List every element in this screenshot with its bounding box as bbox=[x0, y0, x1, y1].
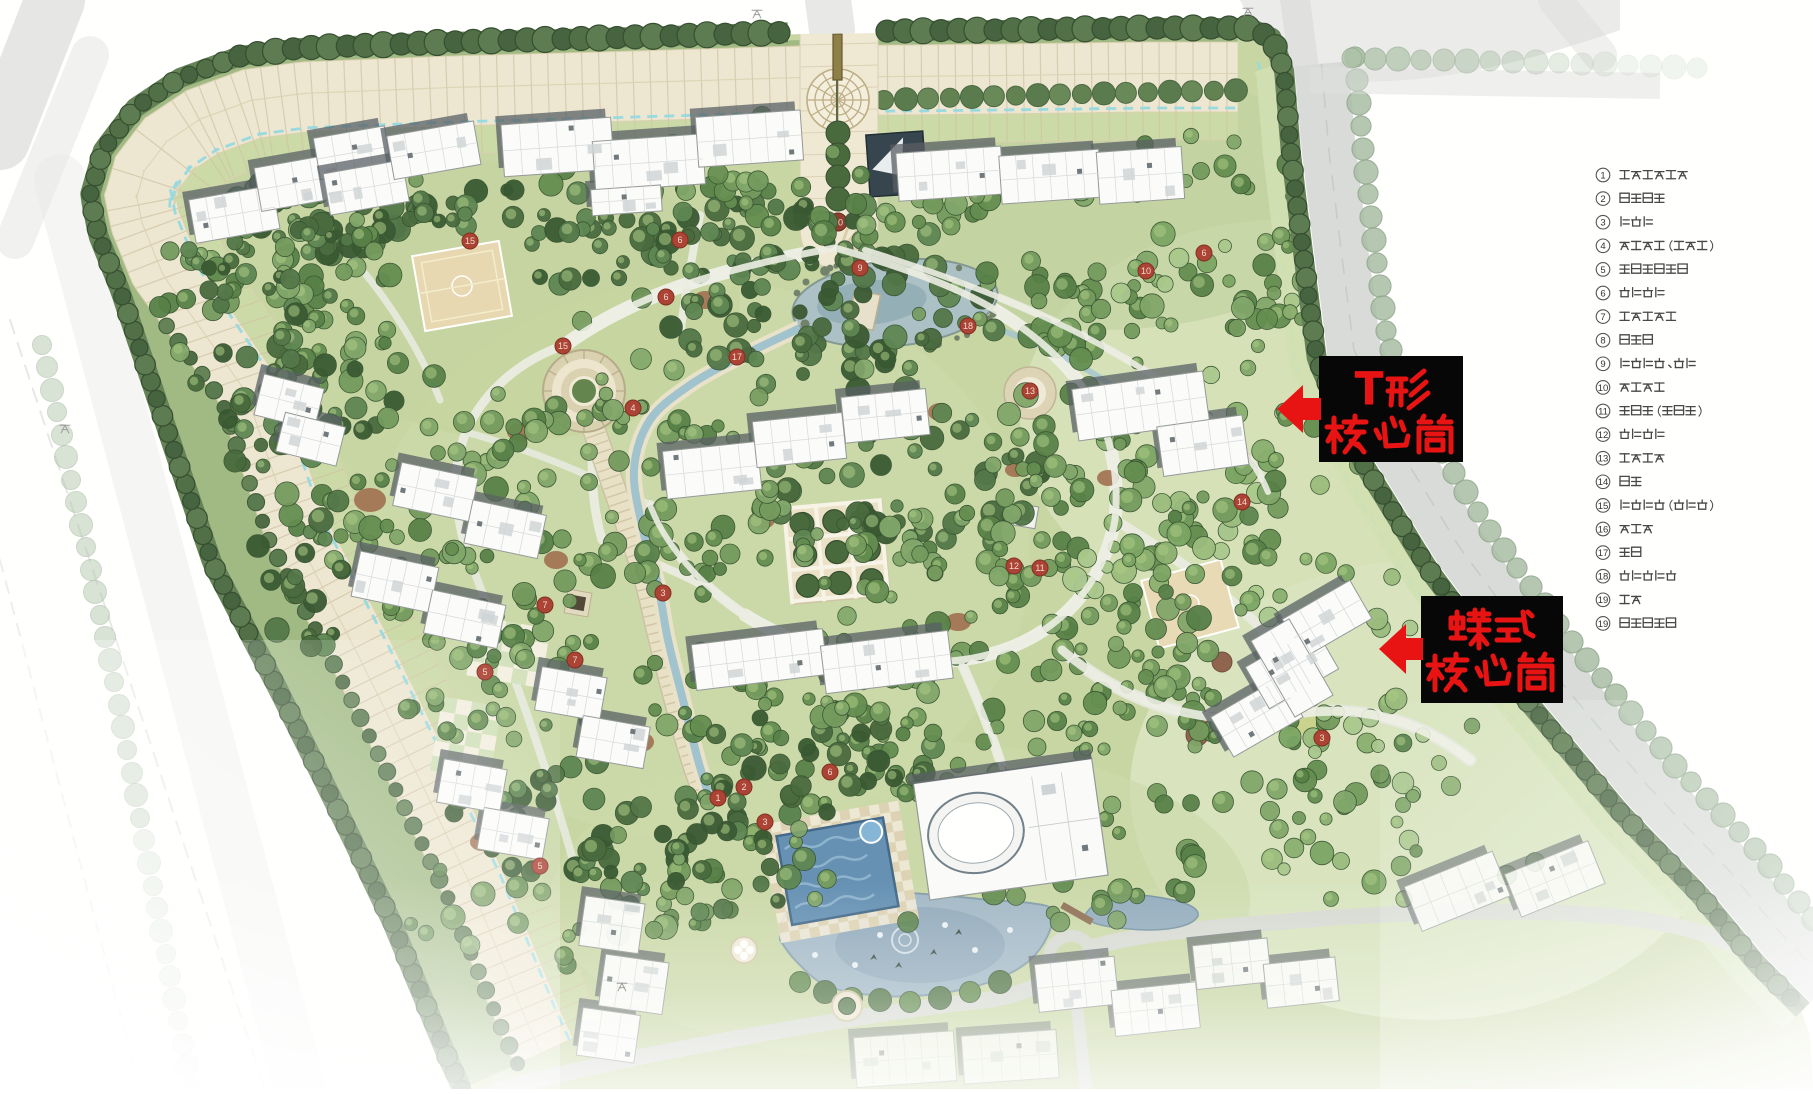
svg-text:12: 12 bbox=[1598, 430, 1609, 441]
svg-text:3: 3 bbox=[1600, 218, 1605, 229]
svg-text:2: 2 bbox=[1600, 194, 1605, 205]
svg-text:13: 13 bbox=[1598, 454, 1609, 465]
svg-text:T: T bbox=[1355, 362, 1383, 414]
svg-text:10: 10 bbox=[1598, 383, 1609, 394]
svg-text:6: 6 bbox=[1600, 288, 1605, 299]
svg-text:1: 1 bbox=[1600, 170, 1605, 181]
svg-text:16: 16 bbox=[1598, 524, 1609, 535]
svg-text:11: 11 bbox=[1598, 406, 1608, 417]
svg-text:14: 14 bbox=[1598, 477, 1609, 488]
svg-text:15: 15 bbox=[1598, 501, 1609, 512]
svg-text:17: 17 bbox=[1598, 548, 1609, 559]
svg-text:9: 9 bbox=[1600, 359, 1605, 370]
svg-text:8: 8 bbox=[1600, 336, 1605, 347]
svg-text:19: 19 bbox=[1598, 595, 1609, 606]
svg-text:7: 7 bbox=[1600, 312, 1605, 323]
svg-text:4: 4 bbox=[1600, 241, 1605, 252]
svg-text:5: 5 bbox=[1600, 265, 1605, 276]
svg-text:18: 18 bbox=[1598, 572, 1609, 583]
svg-text:19: 19 bbox=[1598, 619, 1609, 630]
